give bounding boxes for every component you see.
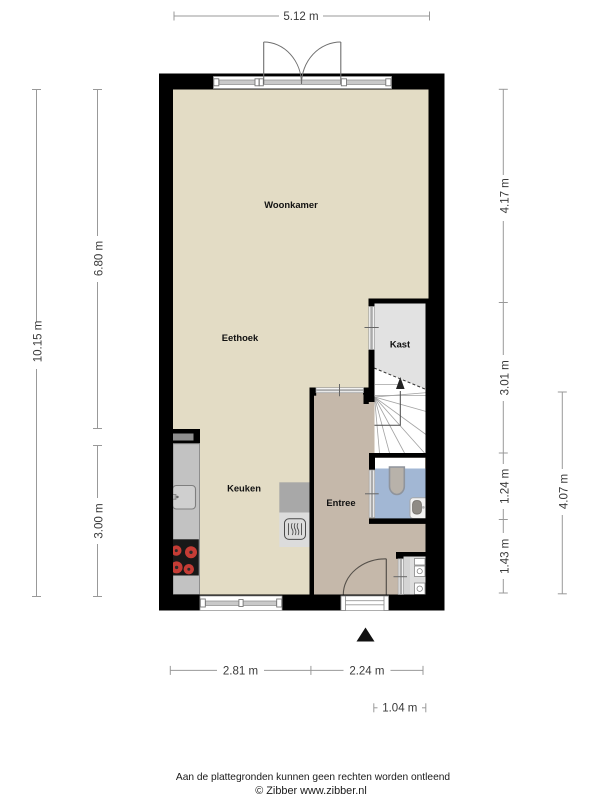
svg-text:10.15 m: 10.15 m [33,321,45,363]
svg-text:Entree: Entree [326,497,355,508]
svg-text:1.04 m: 1.04 m [382,703,417,715]
svg-text:© Zibber www.zibber.nl: © Zibber www.zibber.nl [255,785,367,797]
svg-text:2.24 m: 2.24 m [349,665,384,677]
svg-text:Eethoek: Eethoek [222,332,259,343]
svg-text:6.80 m: 6.80 m [94,241,106,276]
svg-text:1.24 m: 1.24 m [500,469,512,504]
svg-text:4.17 m: 4.17 m [500,178,512,213]
svg-text:Woonkamer: Woonkamer [264,199,318,210]
svg-text:3.00 m: 3.00 m [94,503,106,538]
svg-text:Kast: Kast [390,338,410,349]
svg-text:5.12 m: 5.12 m [283,11,318,23]
svg-text:2.81 m: 2.81 m [223,665,258,677]
svg-text:4.07 m: 4.07 m [559,474,571,509]
svg-text:Keuken: Keuken [227,483,261,494]
svg-text:Aan de plattegronden kunnen ge: Aan de plattegronden kunnen geen rechten… [176,772,450,783]
svg-text:3.01 m: 3.01 m [500,360,512,395]
svg-text:1.43 m: 1.43 m [500,539,512,574]
